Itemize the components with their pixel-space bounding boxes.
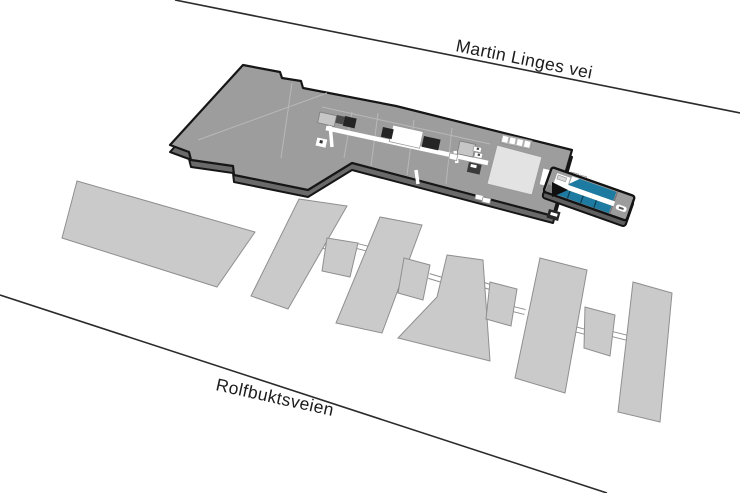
neighbor-building-1[interactable] xyxy=(62,181,255,287)
neighbor-building-7[interactable] xyxy=(486,282,517,326)
street-bottom-label: Rolfbuktsveien xyxy=(214,374,336,420)
stair-mark xyxy=(319,140,323,144)
neighbor-building-3[interactable] xyxy=(322,238,358,277)
street-bottom: Rolfbuktsveien xyxy=(0,295,607,493)
neighbor-building-5[interactable] xyxy=(398,258,430,300)
room-dark-small[interactable] xyxy=(335,115,345,125)
main-building[interactable] xyxy=(170,65,587,223)
street-top-label: Martin Linges vei xyxy=(454,35,594,82)
neighbor-building-9[interactable] xyxy=(584,307,615,356)
map-canvas[interactable]: Martin Linges vei Rolfbuktsveien xyxy=(0,0,740,493)
corridor-nook xyxy=(449,153,458,161)
neighbor-building-10[interactable] xyxy=(618,282,672,422)
neighbor-building-8[interactable] xyxy=(515,258,587,393)
neighbor-buildings xyxy=(62,181,672,422)
campus-map: Martin Linges vei Rolfbuktsveien xyxy=(0,0,740,493)
